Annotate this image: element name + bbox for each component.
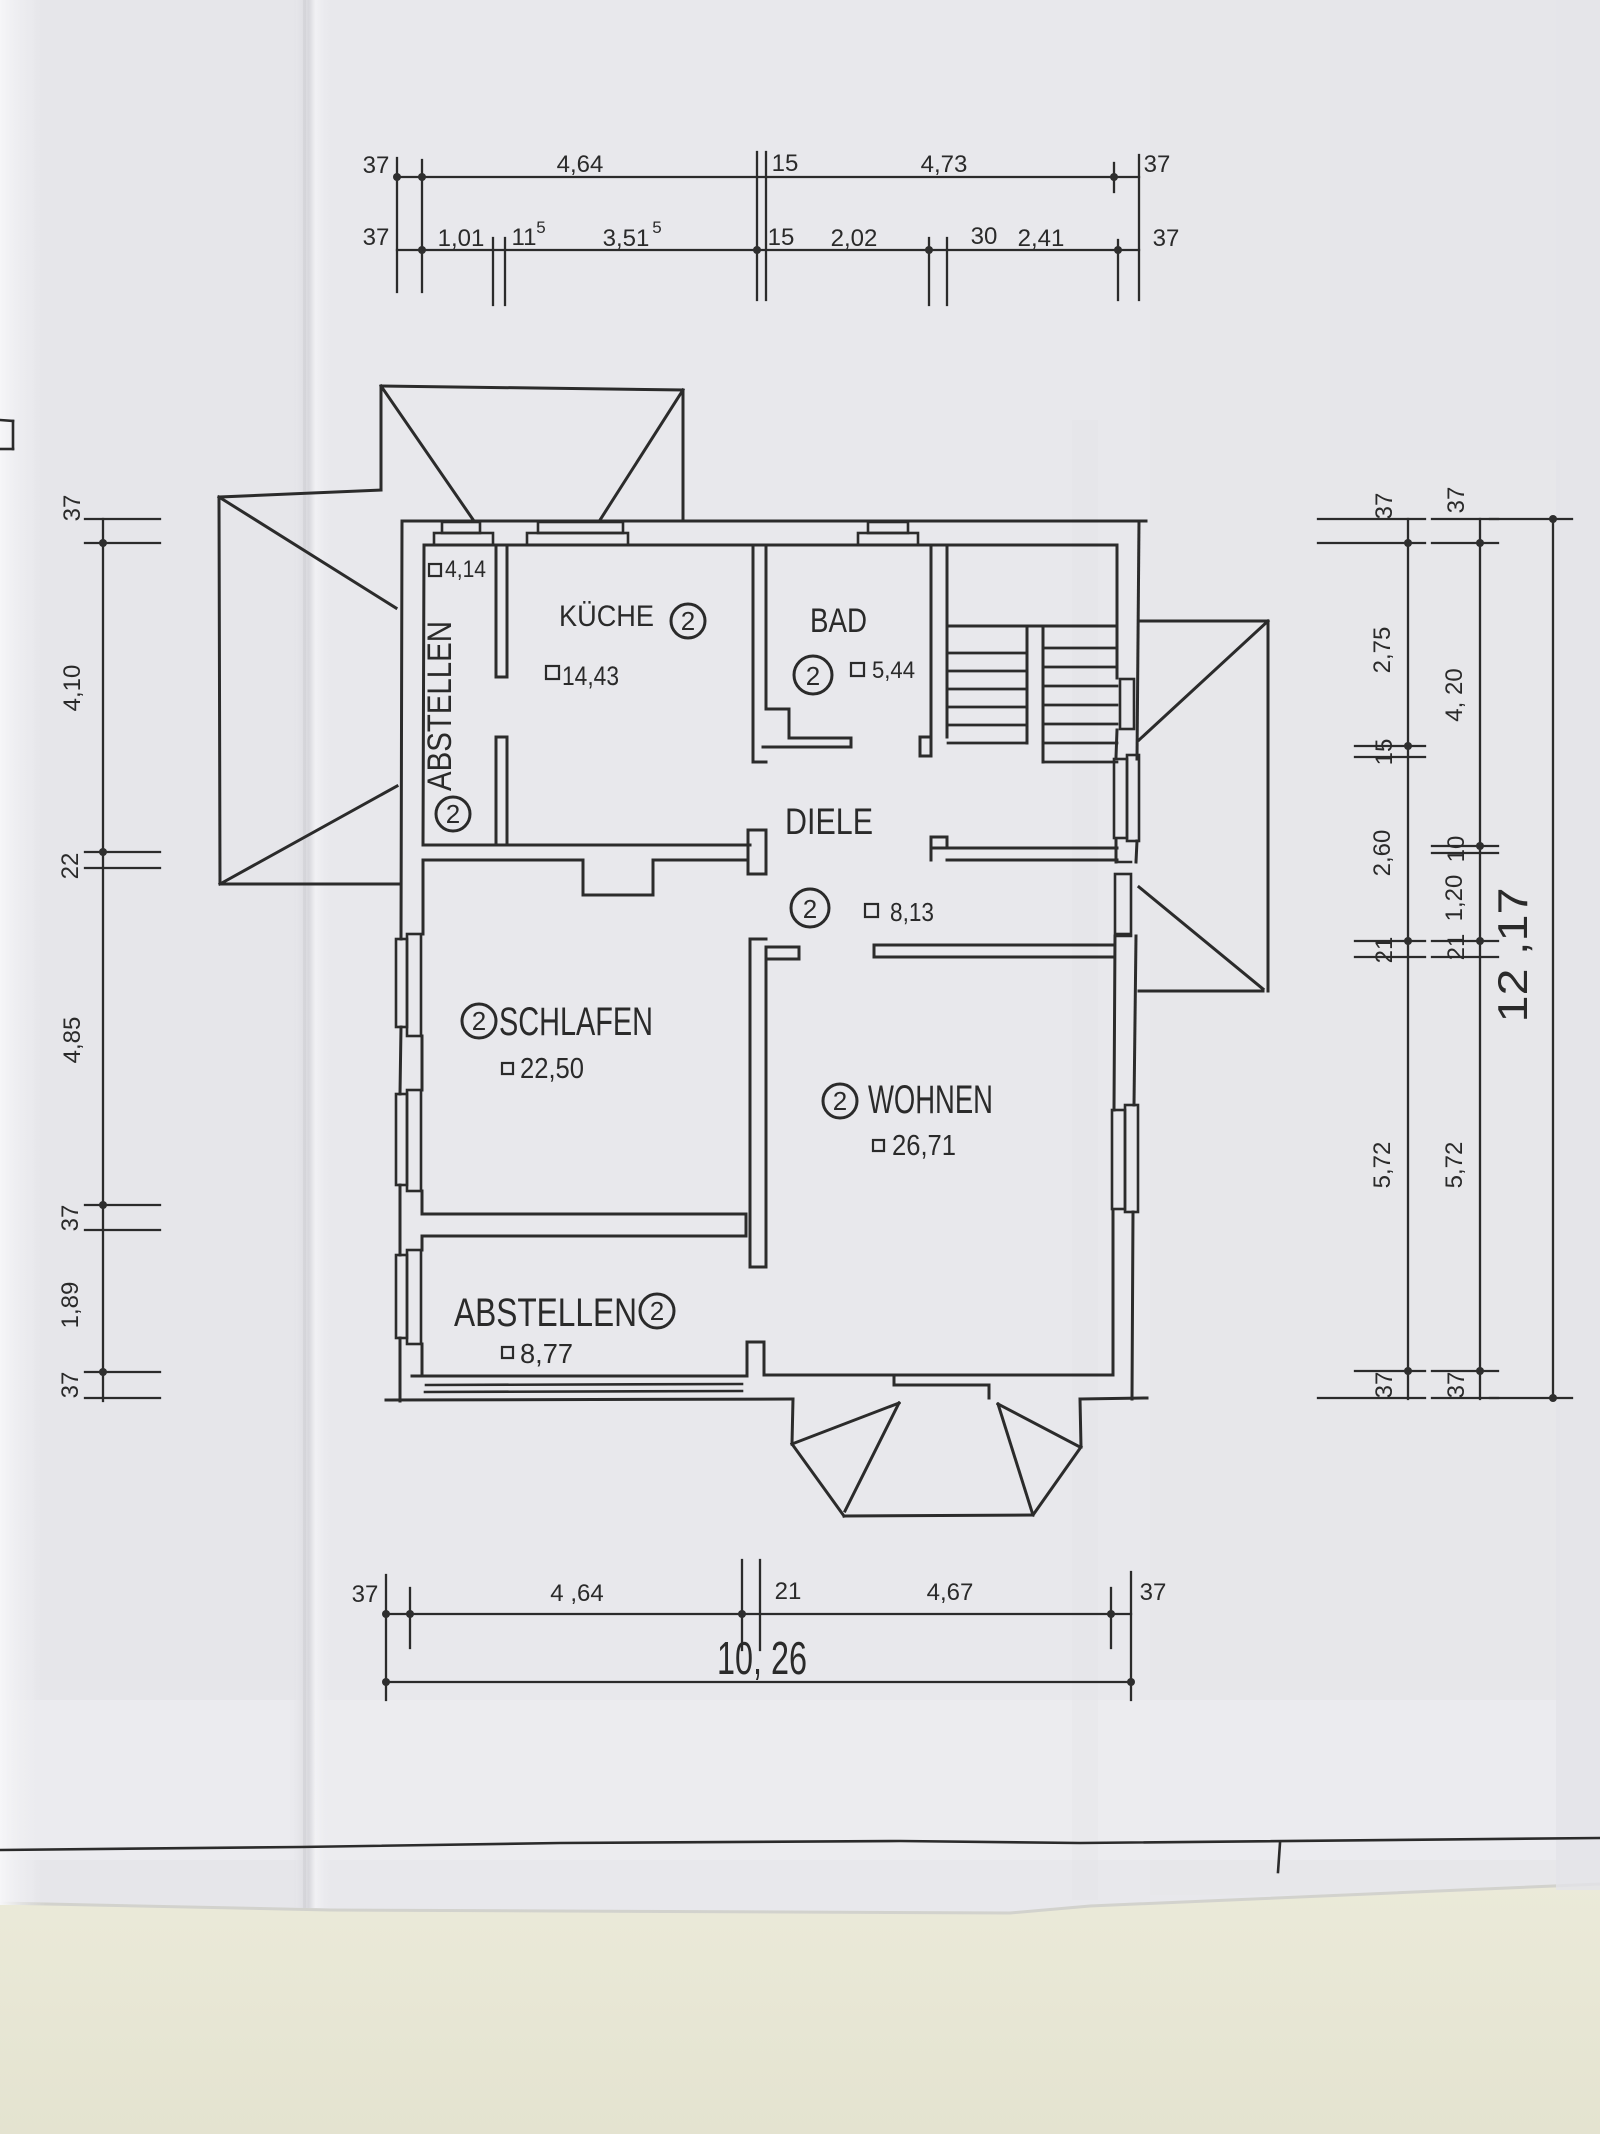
svg-text:37: 37 bbox=[363, 152, 390, 179]
svg-text:22: 22 bbox=[57, 853, 84, 880]
svg-text:5,44: 5,44 bbox=[872, 657, 915, 684]
svg-text:4,67: 4,67 bbox=[927, 1579, 974, 1606]
svg-text:37: 37 bbox=[59, 495, 86, 522]
svg-text:37: 37 bbox=[1371, 493, 1398, 520]
svg-text:3,51: 3,51 bbox=[603, 225, 650, 252]
svg-text:2: 2 bbox=[472, 1006, 486, 1036]
svg-text:BAD: BAD bbox=[810, 602, 867, 640]
svg-text:1,89: 1,89 bbox=[57, 1282, 84, 1329]
svg-text:5: 5 bbox=[652, 218, 661, 237]
svg-text:37: 37 bbox=[1371, 1372, 1398, 1399]
svg-text:4 ,64: 4 ,64 bbox=[550, 1580, 603, 1607]
svg-text:8,77: 8,77 bbox=[520, 1338, 573, 1369]
svg-text:1,01: 1,01 bbox=[438, 225, 485, 252]
svg-text:37: 37 bbox=[363, 224, 390, 251]
svg-text:2: 2 bbox=[650, 1296, 664, 1326]
svg-text:4,14: 4,14 bbox=[445, 556, 486, 583]
svg-text:4,85: 4,85 bbox=[59, 1017, 86, 1064]
svg-text:37: 37 bbox=[352, 1581, 379, 1608]
svg-text:4, 20: 4, 20 bbox=[1441, 668, 1468, 721]
svg-text:WOHNEN: WOHNEN bbox=[868, 1078, 993, 1122]
svg-text:2: 2 bbox=[806, 661, 820, 691]
svg-text:21: 21 bbox=[1443, 934, 1470, 961]
svg-text:2,41: 2,41 bbox=[1018, 225, 1065, 252]
svg-text:21: 21 bbox=[1371, 937, 1398, 964]
svg-text:4,10: 4,10 bbox=[59, 665, 86, 712]
svg-text:30: 30 bbox=[971, 223, 998, 250]
svg-text:37: 37 bbox=[1443, 1372, 1470, 1399]
svg-text:21: 21 bbox=[775, 1578, 802, 1605]
svg-text:26,71: 26,71 bbox=[892, 1130, 956, 1162]
svg-text:10, 26: 10, 26 bbox=[717, 1632, 807, 1684]
svg-text:2,02: 2,02 bbox=[831, 225, 878, 252]
svg-text:14,43: 14,43 bbox=[562, 661, 619, 691]
svg-text:2,75: 2,75 bbox=[1369, 627, 1396, 674]
svg-text:1,20: 1,20 bbox=[1441, 875, 1468, 922]
svg-text:SCHLAFEN: SCHLAFEN bbox=[499, 1000, 653, 1044]
svg-text:15: 15 bbox=[772, 150, 799, 177]
svg-text:37: 37 bbox=[1144, 151, 1171, 178]
svg-text:15: 15 bbox=[768, 224, 795, 251]
svg-text:4,64: 4,64 bbox=[557, 151, 604, 178]
svg-text:2: 2 bbox=[833, 1086, 847, 1116]
svg-text:22,50: 22,50 bbox=[520, 1053, 584, 1085]
svg-text:5,72: 5,72 bbox=[1369, 1142, 1396, 1189]
svg-text:4,73: 4,73 bbox=[921, 151, 968, 178]
svg-text:KÜCHE: KÜCHE bbox=[559, 600, 654, 633]
svg-text:8,13: 8,13 bbox=[890, 897, 934, 927]
svg-text:12 ,17: 12 ,17 bbox=[1489, 888, 1536, 1023]
svg-text:ABSTELLEN: ABSTELLEN bbox=[454, 1291, 637, 1335]
svg-text:ABSTELLEN: ABSTELLEN bbox=[421, 621, 459, 791]
svg-text:5: 5 bbox=[536, 218, 545, 237]
svg-text:DIELE: DIELE bbox=[785, 801, 873, 842]
svg-text:37: 37 bbox=[57, 1205, 84, 1232]
svg-text:10: 10 bbox=[1443, 836, 1470, 863]
svg-text:2: 2 bbox=[446, 799, 460, 829]
svg-text:37: 37 bbox=[1140, 1579, 1167, 1606]
svg-text:2,60: 2,60 bbox=[1369, 830, 1396, 877]
svg-text:15: 15 bbox=[1371, 739, 1398, 766]
svg-text:2: 2 bbox=[803, 894, 817, 924]
svg-text:5,72: 5,72 bbox=[1441, 1142, 1468, 1189]
svg-text:37: 37 bbox=[57, 1372, 84, 1399]
svg-text:37: 37 bbox=[1443, 487, 1470, 514]
svg-text:11: 11 bbox=[512, 224, 537, 251]
svg-text:37: 37 bbox=[1153, 225, 1180, 252]
svg-text:2: 2 bbox=[681, 606, 695, 636]
